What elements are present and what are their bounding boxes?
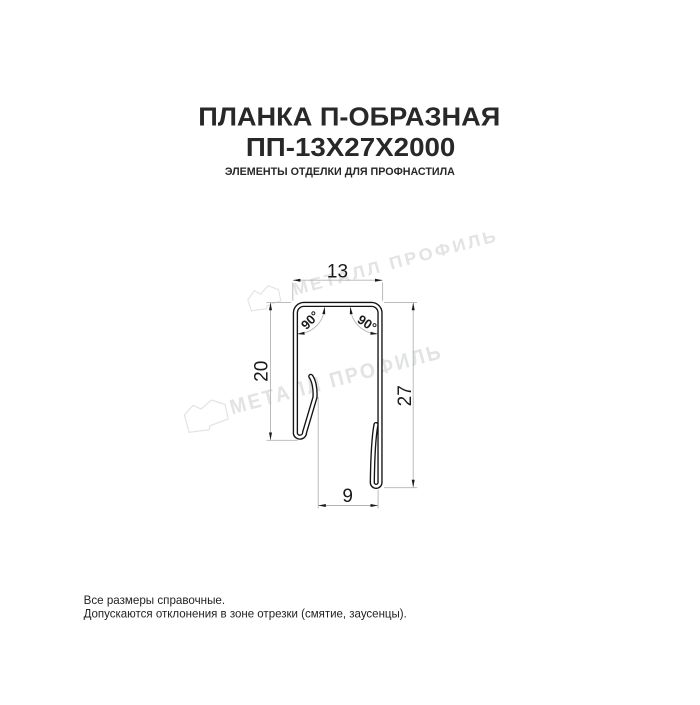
svg-text:9: 9 xyxy=(342,486,353,507)
svg-text:Допускаются отклонения в зоне: Допускаются отклонения в зоне отрезки (с… xyxy=(84,607,407,621)
svg-text:27: 27 xyxy=(395,385,416,406)
svg-text:ПЛАНКА П-ОБРАЗНАЯ: ПЛАНКА П-ОБРАЗНАЯ xyxy=(198,104,500,132)
svg-text:20: 20 xyxy=(251,361,272,382)
svg-text:ПП-13Х27Х2000: ПП-13Х27Х2000 xyxy=(246,134,456,162)
svg-text:Все размеры справочные.: Все размеры справочные. xyxy=(84,593,226,607)
svg-text:ЭЛЕМЕНТЫ ОТДЕЛКИ ДЛЯ ПРОФНАСТИ: ЭЛЕМЕНТЫ ОТДЕЛКИ ДЛЯ ПРОФНАСТИЛА xyxy=(225,166,455,178)
svg-text:13: 13 xyxy=(327,262,348,283)
